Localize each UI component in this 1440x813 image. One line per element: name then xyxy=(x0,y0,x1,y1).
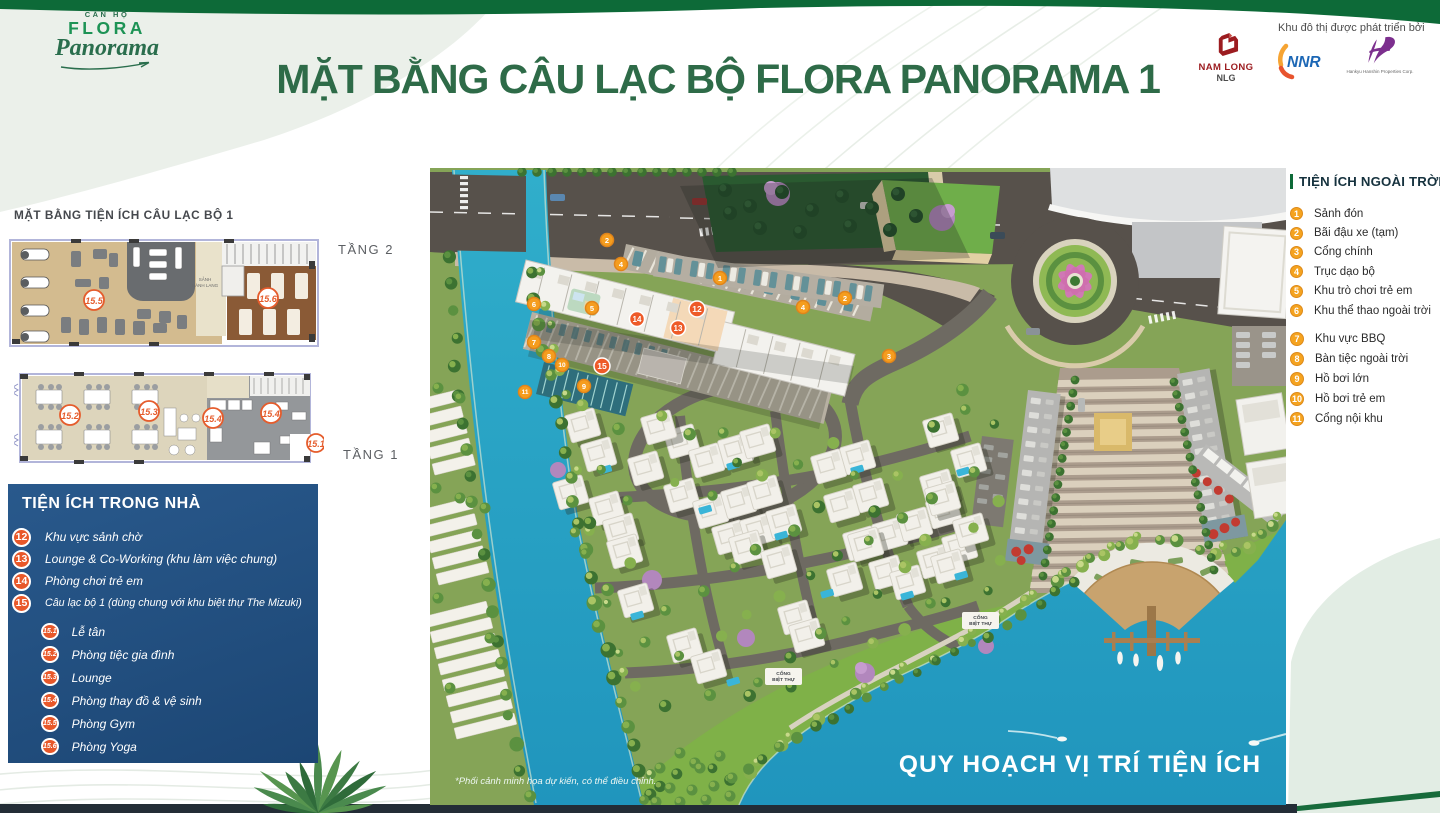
svg-text:9: 9 xyxy=(582,382,586,391)
svg-text:3: 3 xyxy=(887,352,891,361)
svg-text:5: 5 xyxy=(590,304,594,313)
svg-text:QUY HOẠCH VỊ TRÍ TIỆN ÍCH: QUY HOẠCH VỊ TRÍ TIỆN ÍCH xyxy=(899,750,1261,778)
svg-text:SẢNH: SẢNH xyxy=(199,276,212,282)
svg-text:15.4: 15.4 xyxy=(262,409,280,419)
svg-text:6: 6 xyxy=(532,300,536,309)
svg-text:7: 7 xyxy=(532,338,536,347)
svg-text:15.6: 15.6 xyxy=(259,294,278,304)
svg-text:15.5: 15.5 xyxy=(85,296,104,306)
svg-text:15.2: 15.2 xyxy=(61,411,79,421)
svg-text:8: 8 xyxy=(547,352,551,361)
svg-text:2: 2 xyxy=(605,236,609,245)
svg-text:15.4: 15.4 xyxy=(204,414,222,424)
svg-text:NNR: NNR xyxy=(1287,54,1321,71)
svg-text:HÀNH LANG: HÀNH LANG xyxy=(192,282,219,288)
svg-text:1: 1 xyxy=(718,274,722,283)
svg-text:CỔNG: CỔNG xyxy=(776,670,791,677)
svg-text:13: 13 xyxy=(674,324,683,333)
svg-text:CỔNG: CỔNG xyxy=(973,614,988,621)
svg-text:10: 10 xyxy=(558,362,566,369)
svg-text:*Phối cảnh minh họa dự kiến, c: *Phối cảnh minh họa dự kiến, có thể điều… xyxy=(455,776,656,787)
svg-text:15: 15 xyxy=(597,361,607,371)
svg-text:15.3: 15.3 xyxy=(140,407,158,417)
svg-text:2: 2 xyxy=(843,294,847,303)
svg-text:14: 14 xyxy=(633,315,642,324)
svg-text:12: 12 xyxy=(692,304,702,314)
svg-text:11: 11 xyxy=(522,389,529,396)
svg-text:15.1: 15.1 xyxy=(307,439,324,449)
